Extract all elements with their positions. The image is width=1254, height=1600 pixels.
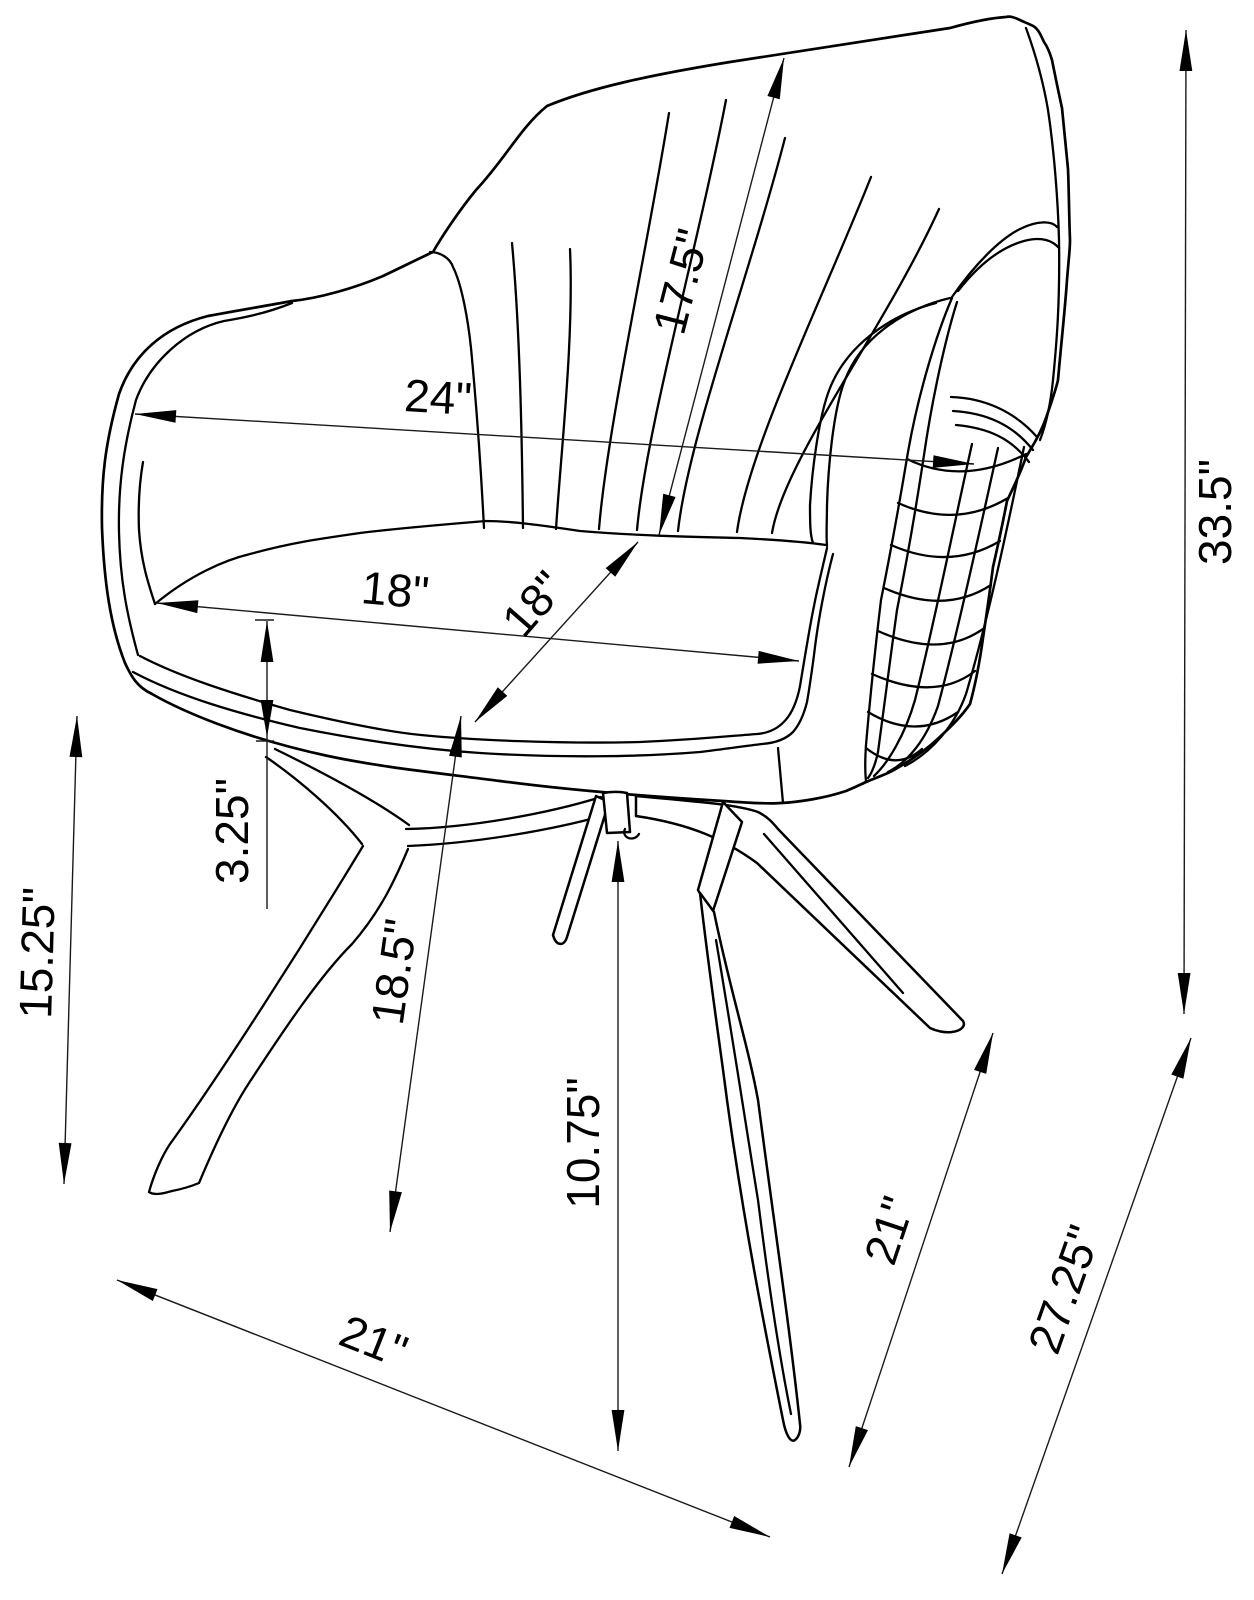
svg-text:24": 24" bbox=[403, 369, 473, 425]
svg-text:10.75": 10.75" bbox=[557, 1077, 609, 1208]
svg-text:3.25": 3.25" bbox=[206, 778, 258, 884]
svg-text:18": 18" bbox=[359, 561, 431, 619]
svg-text:15.25": 15.25" bbox=[9, 887, 65, 1020]
svg-text:33.5": 33.5" bbox=[1189, 459, 1241, 565]
